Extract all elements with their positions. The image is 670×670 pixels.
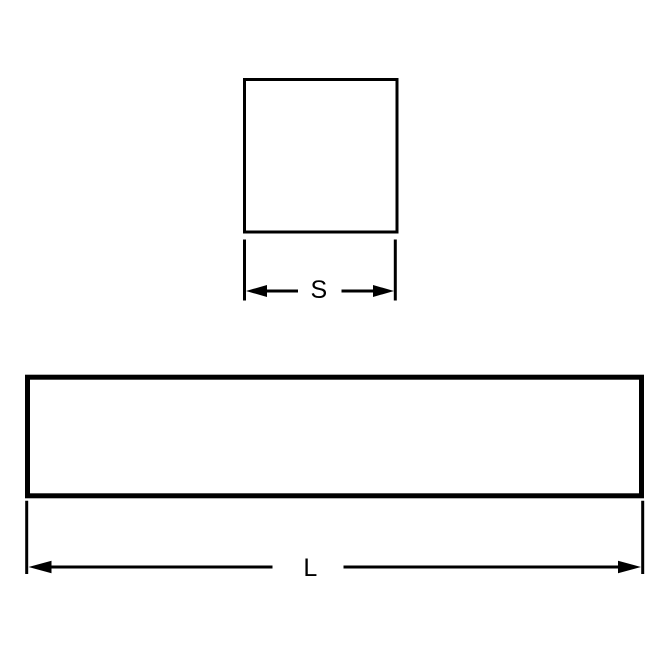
svg-text:L: L (303, 554, 317, 582)
svg-text:S: S (310, 276, 327, 304)
